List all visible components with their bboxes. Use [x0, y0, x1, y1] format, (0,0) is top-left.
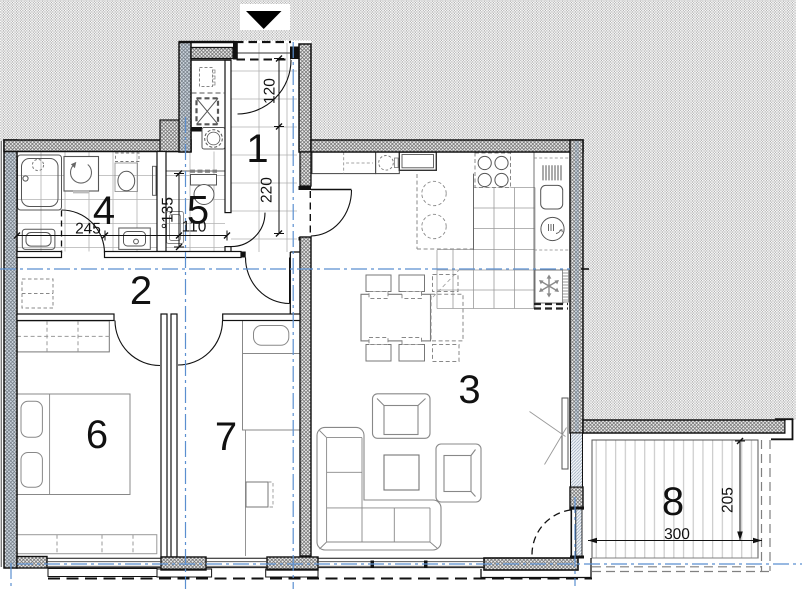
svg-text:8: 8 [662, 480, 684, 524]
svg-text:4: 4 [93, 189, 115, 233]
svg-text:°135: °135 [160, 197, 177, 229]
svg-text:205: 205 [720, 487, 737, 513]
svg-text:6: 6 [86, 413, 108, 457]
svg-text:7: 7 [215, 415, 237, 459]
svg-text:2: 2 [130, 269, 152, 313]
svg-text:5: 5 [187, 189, 209, 233]
svg-text:3: 3 [458, 368, 480, 412]
svg-text:120: 120 [262, 78, 279, 104]
svg-text:220: 220 [259, 177, 276, 203]
svg-text:1: 1 [246, 127, 268, 171]
svg-text:300: 300 [664, 526, 690, 543]
